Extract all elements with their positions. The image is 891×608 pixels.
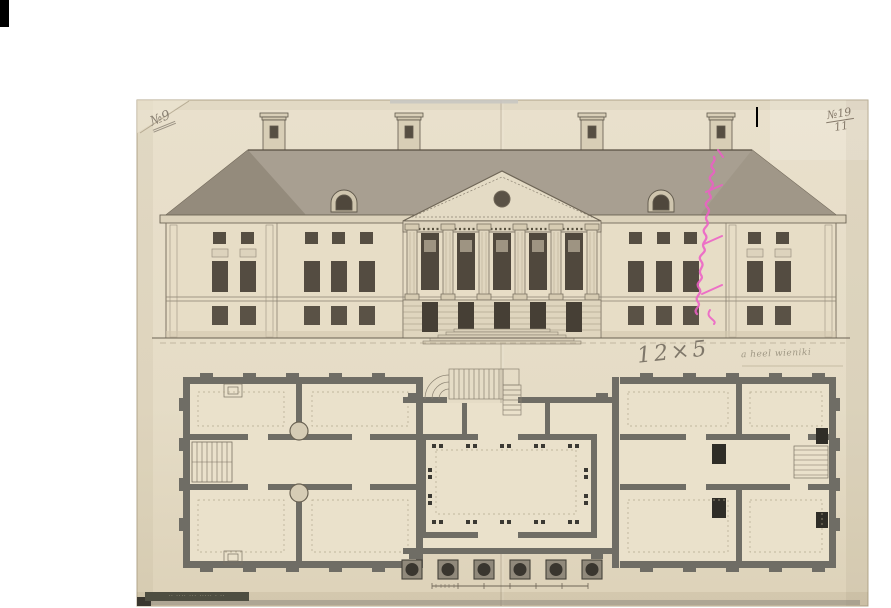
cursor-mark	[756, 107, 758, 127]
scan-canvas: №9 №19 11 12×5 a heel wieniki ·· ···· ··…	[0, 0, 891, 608]
tympanum-medallion	[494, 191, 510, 207]
round-stove	[290, 484, 308, 502]
drawing-svg	[0, 0, 891, 608]
entablature	[403, 221, 601, 232]
round-stove	[290, 422, 308, 440]
screen-corner-mark	[0, 0, 9, 27]
